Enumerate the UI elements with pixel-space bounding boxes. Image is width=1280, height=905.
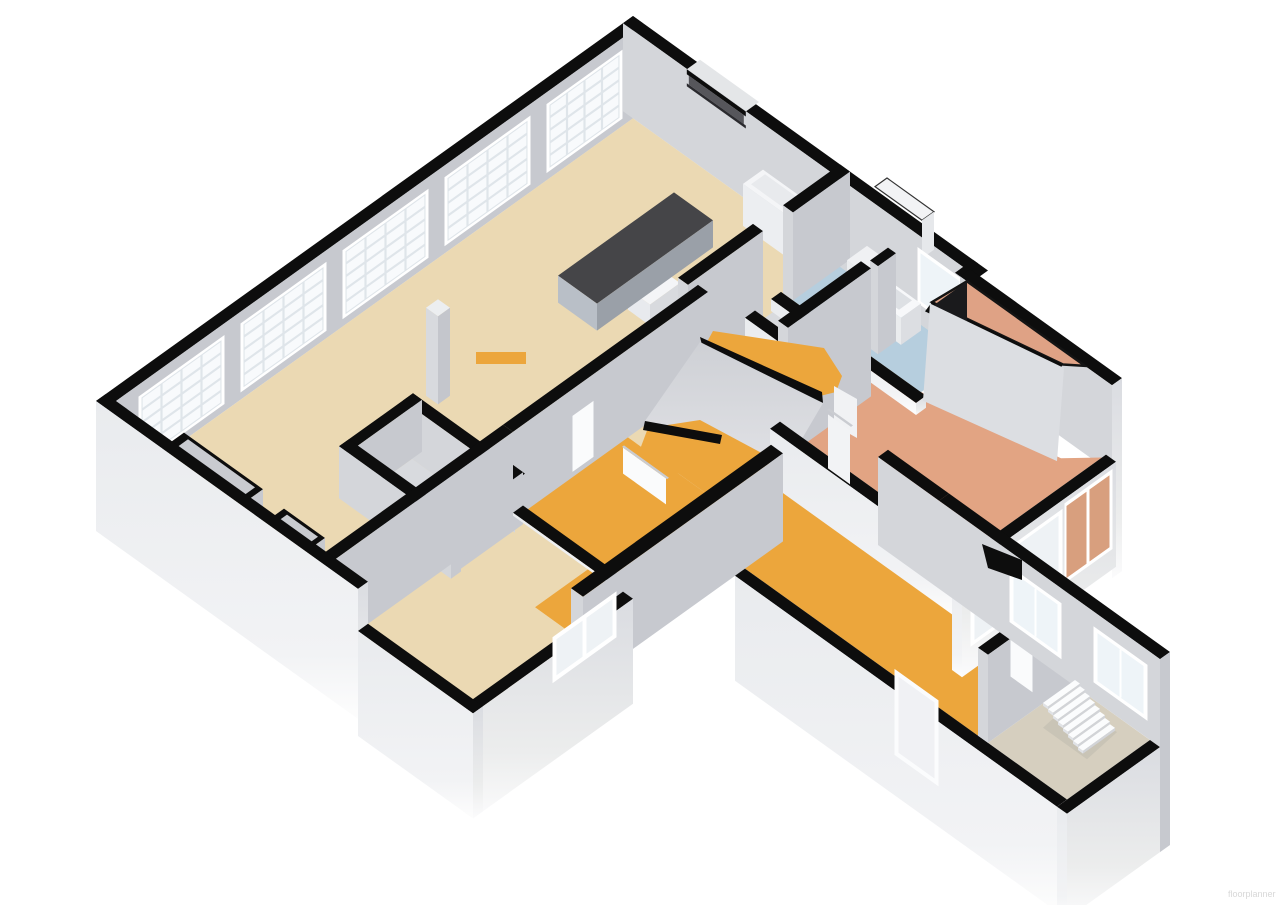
svg-text:floorplanner: floorplanner <box>1228 889 1276 899</box>
